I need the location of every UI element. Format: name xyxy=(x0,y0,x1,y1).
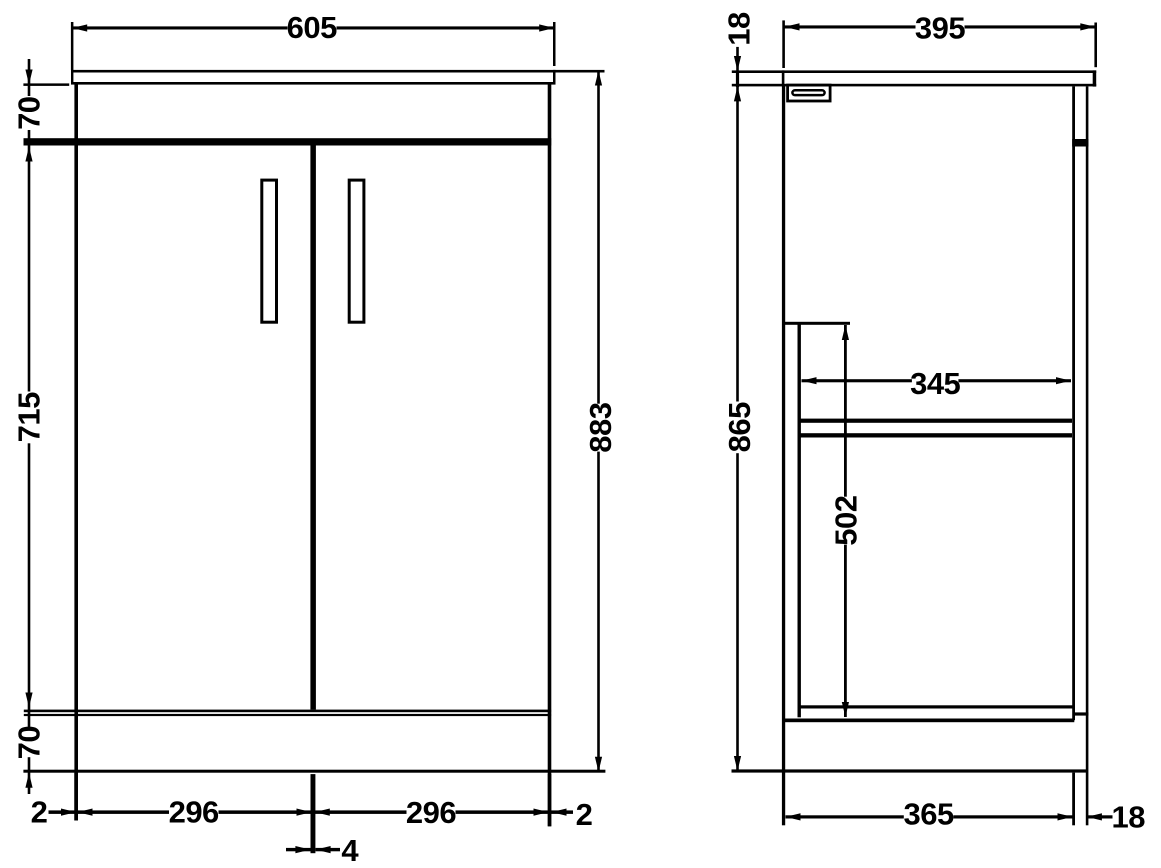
svg-text:18: 18 xyxy=(1111,800,1145,835)
svg-text:865: 865 xyxy=(722,402,757,452)
svg-text:605: 605 xyxy=(287,10,337,45)
svg-text:296: 296 xyxy=(169,794,219,829)
svg-text:883: 883 xyxy=(583,402,618,452)
svg-text:296: 296 xyxy=(406,795,456,830)
svg-text:4: 4 xyxy=(341,833,359,868)
svg-text:715: 715 xyxy=(12,392,47,442)
svg-text:70: 70 xyxy=(12,96,47,129)
svg-text:345: 345 xyxy=(910,366,960,401)
svg-text:70: 70 xyxy=(12,726,47,759)
svg-text:365: 365 xyxy=(903,796,953,831)
svg-text:502: 502 xyxy=(829,495,864,545)
svg-text:395: 395 xyxy=(915,10,965,45)
svg-text:18: 18 xyxy=(721,12,756,46)
svg-text:2: 2 xyxy=(31,795,48,830)
svg-text:2: 2 xyxy=(576,797,593,832)
